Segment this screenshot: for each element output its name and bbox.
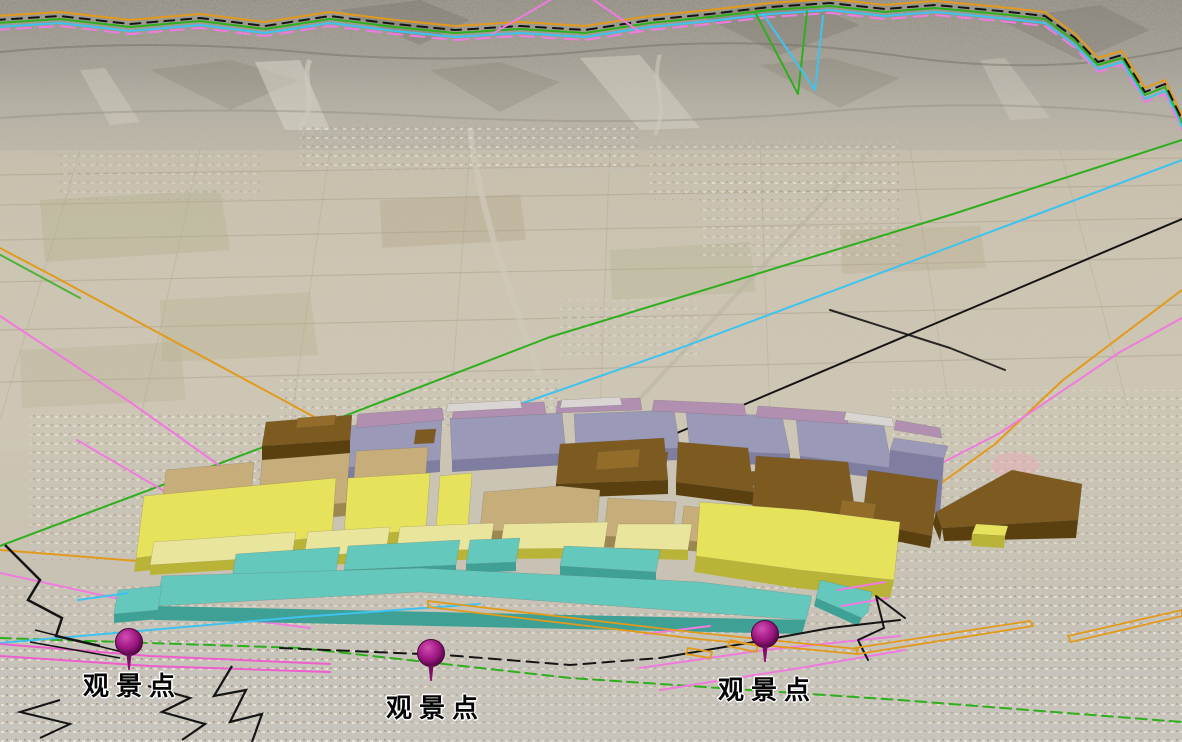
viewpoint-pin-icon[interactable] bbox=[115, 628, 143, 656]
viewpoint-pin-icon[interactable] bbox=[417, 639, 445, 667]
viewpoint-label: 观景点 bbox=[718, 670, 817, 707]
scene-render bbox=[0, 0, 1182, 742]
viewpoint-label: 观景点 bbox=[386, 688, 485, 725]
gis-3d-scene-viewport[interactable]: 观景点 观景点 观景点 bbox=[0, 0, 1182, 742]
viewpoint-label: 观景点 bbox=[83, 666, 182, 703]
viewpoint-pin-icon[interactable] bbox=[751, 620, 779, 648]
